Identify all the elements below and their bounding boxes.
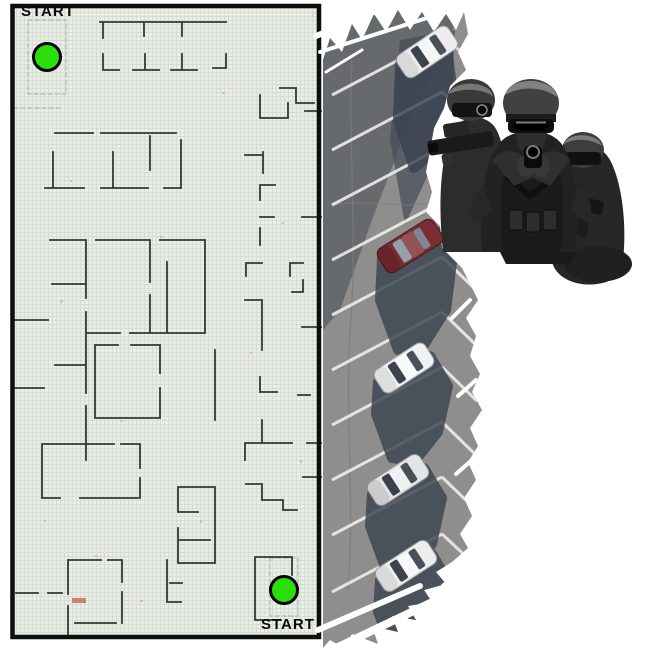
floorplan-walls [13, 6, 322, 637]
start-label-top: START [21, 3, 75, 20]
start-label-bottom: START [261, 616, 315, 633]
map-border [13, 6, 320, 637]
swat-team-photo [425, 79, 632, 285]
start-point-marker-top[interactable] [32, 42, 62, 72]
red-print-mark [72, 598, 86, 603]
start-point-marker-bottom[interactable] [269, 575, 299, 605]
game-map-briefing: START START [0, 0, 650, 650]
scene-art [0, 0, 650, 650]
